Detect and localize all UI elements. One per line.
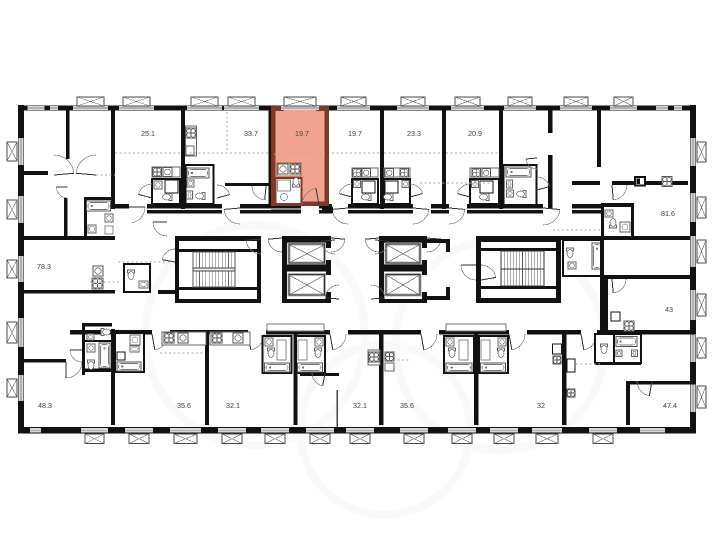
svg-text:25.1: 25.1 bbox=[141, 129, 155, 138]
svg-text:48.3: 48.3 bbox=[38, 401, 52, 410]
svg-text:35.6: 35.6 bbox=[400, 401, 414, 410]
svg-text:32.1: 32.1 bbox=[353, 401, 367, 410]
svg-text:81.6: 81.6 bbox=[661, 209, 675, 218]
svg-text:47.4: 47.4 bbox=[663, 401, 677, 410]
svg-text:43: 43 bbox=[665, 305, 673, 314]
svg-text:35.6: 35.6 bbox=[177, 401, 191, 410]
svg-text:23.3: 23.3 bbox=[407, 129, 421, 138]
svg-text:19.7: 19.7 bbox=[295, 129, 309, 138]
svg-text:32: 32 bbox=[537, 401, 545, 410]
svg-text:19.7: 19.7 bbox=[348, 129, 362, 138]
svg-text:20.9: 20.9 bbox=[468, 129, 482, 138]
svg-text:33.7: 33.7 bbox=[244, 129, 258, 138]
svg-text:78.3: 78.3 bbox=[37, 262, 51, 271]
svg-text:32.1: 32.1 bbox=[226, 401, 240, 410]
